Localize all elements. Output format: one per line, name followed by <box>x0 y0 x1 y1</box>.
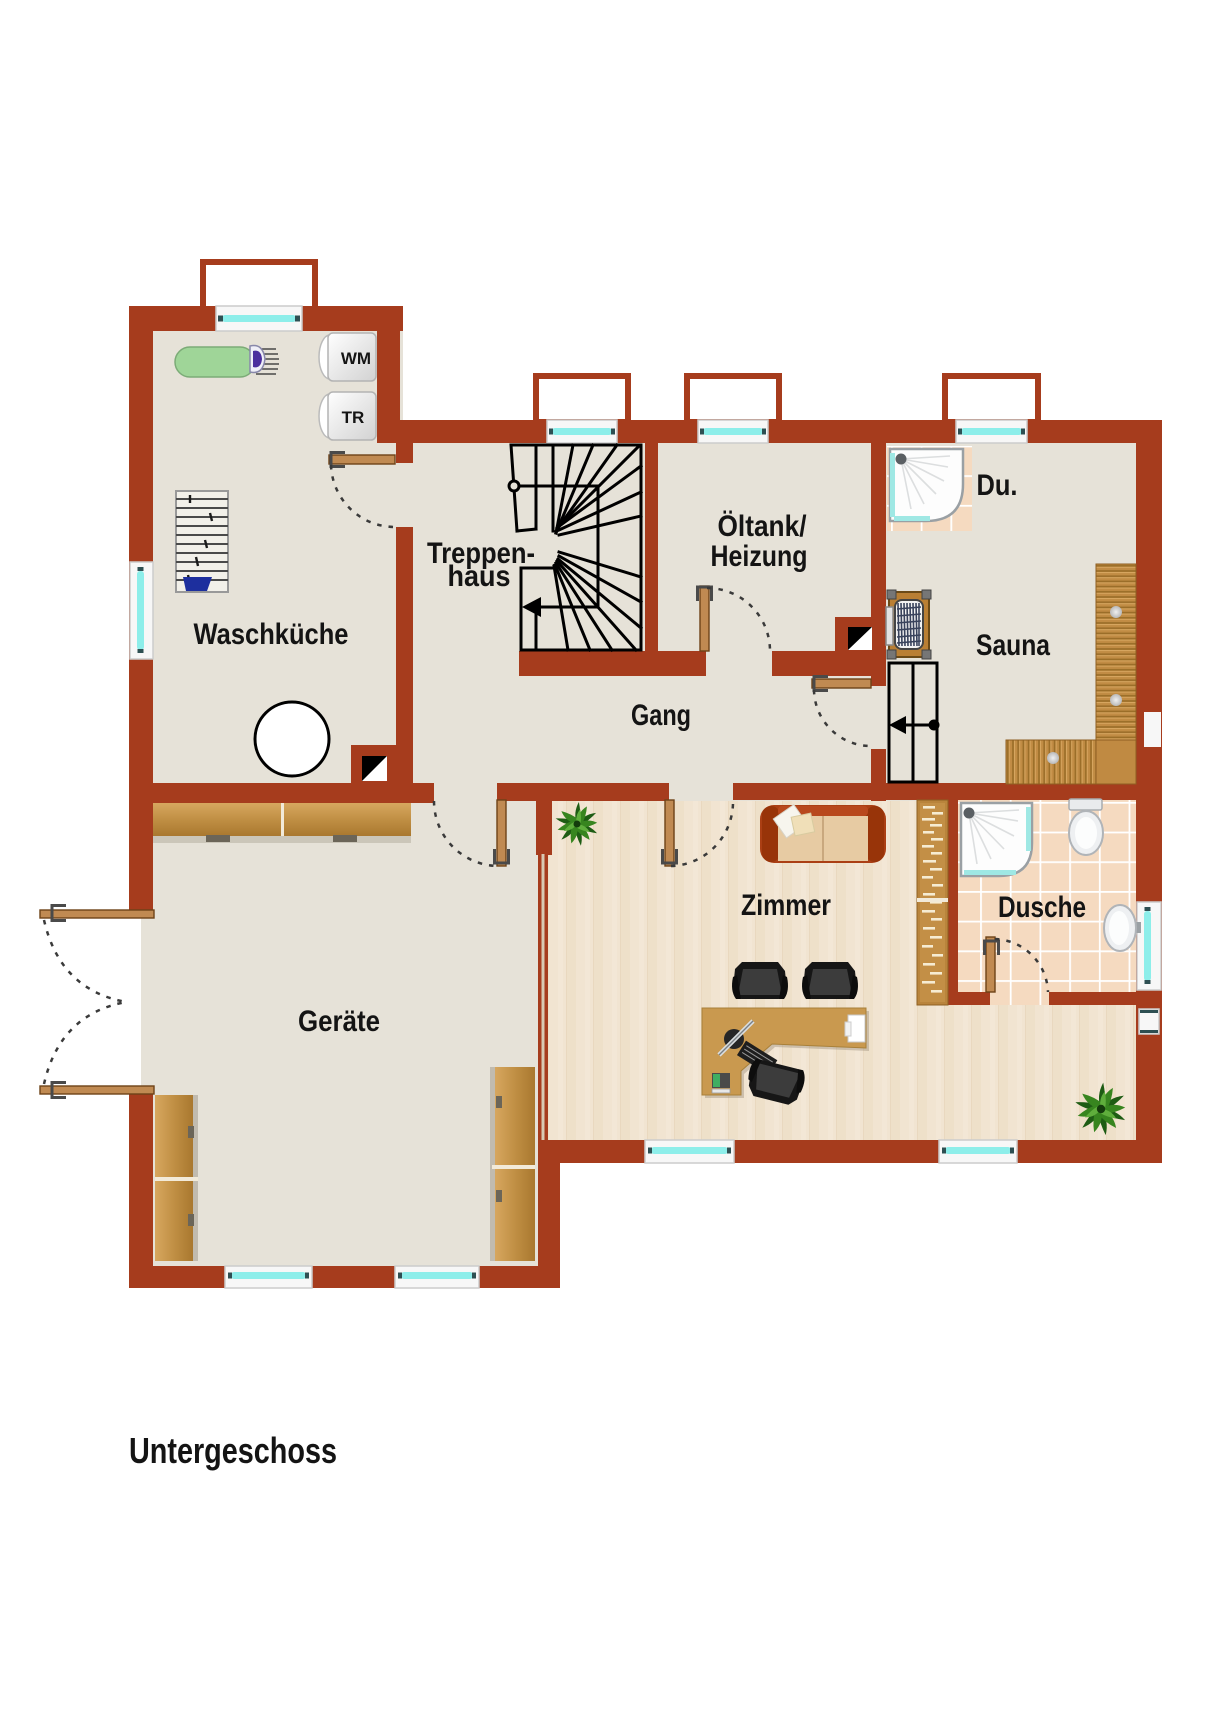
svg-text:Gang: Gang <box>631 699 691 732</box>
svg-text:Heizung: Heizung <box>711 540 808 573</box>
svg-text:Sauna: Sauna <box>976 629 1050 662</box>
svg-text:haus: haus <box>448 560 511 593</box>
svg-text:Zimmer: Zimmer <box>741 889 831 922</box>
svg-text:Geräte: Geräte <box>298 1005 380 1038</box>
svg-text:TR: TR <box>342 408 365 427</box>
svg-text:Dusche: Dusche <box>998 891 1086 924</box>
svg-text:WM: WM <box>341 349 371 368</box>
svg-text:Öltank/: Öltank/ <box>718 510 808 543</box>
svg-text:Untergeschoss: Untergeschoss <box>129 1430 337 1471</box>
svg-text:Du.: Du. <box>977 469 1018 502</box>
svg-text:Waschküche: Waschküche <box>194 618 349 651</box>
